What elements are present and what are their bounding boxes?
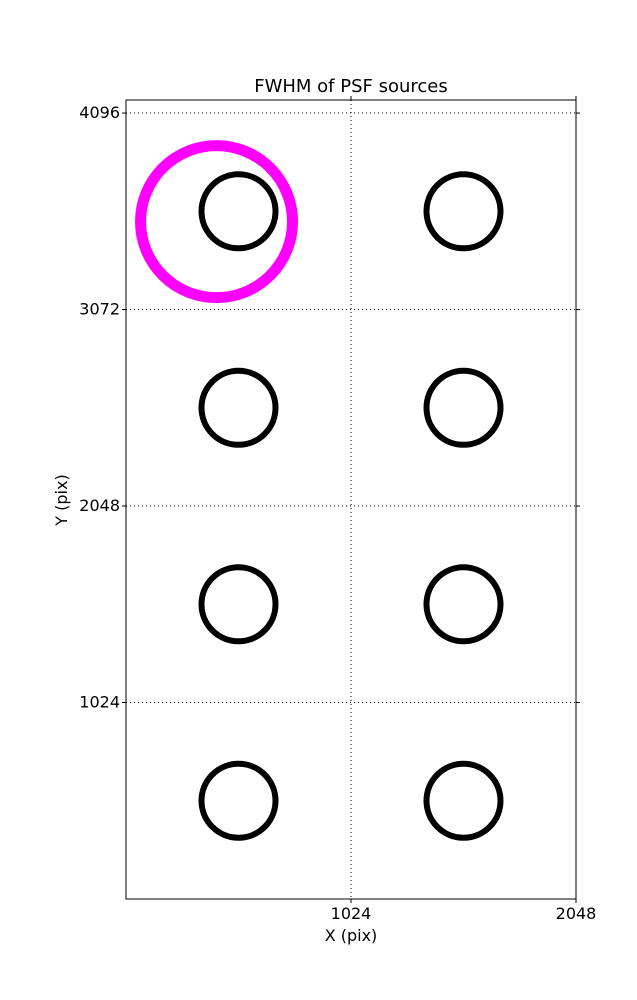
tick-label-x-2048: 2048 — [556, 904, 597, 923]
y-axis-label: Y (pix) — [52, 474, 71, 526]
psf-source-marker — [427, 371, 501, 445]
tick-label-layer: 102420481024204830724096 — [79, 103, 596, 923]
tick-label-y-4096: 4096 — [79, 103, 120, 122]
x-axis-label: X (pix) — [325, 926, 378, 945]
psf-source-marker — [202, 371, 276, 445]
tick-label-y-2048: 2048 — [79, 496, 120, 515]
psf-source-marker — [427, 764, 501, 838]
tick-label-y-3072: 3072 — [79, 300, 120, 319]
psf-source-marker — [427, 174, 501, 248]
psf-source-marker — [202, 174, 276, 248]
tick-label-x-1024: 1024 — [331, 904, 372, 923]
marker-layer — [141, 146, 501, 838]
psf-source-marker — [202, 764, 276, 838]
plot-area — [126, 100, 576, 899]
psf-source-marker — [427, 567, 501, 641]
chart-title: FWHM of PSF sources — [254, 76, 448, 97]
figure: 102420481024204830724096 FWHM of PSF sou… — [0, 0, 637, 1000]
tick-layer — [122, 96, 580, 903]
psf-source-marker — [202, 567, 276, 641]
highlighted-source-marker — [141, 146, 293, 298]
grid-layer — [126, 100, 576, 899]
tick-label-y-1024: 1024 — [79, 693, 120, 712]
fwhm-psf-chart: 102420481024204830724096 FWHM of PSF sou… — [0, 0, 637, 1000]
